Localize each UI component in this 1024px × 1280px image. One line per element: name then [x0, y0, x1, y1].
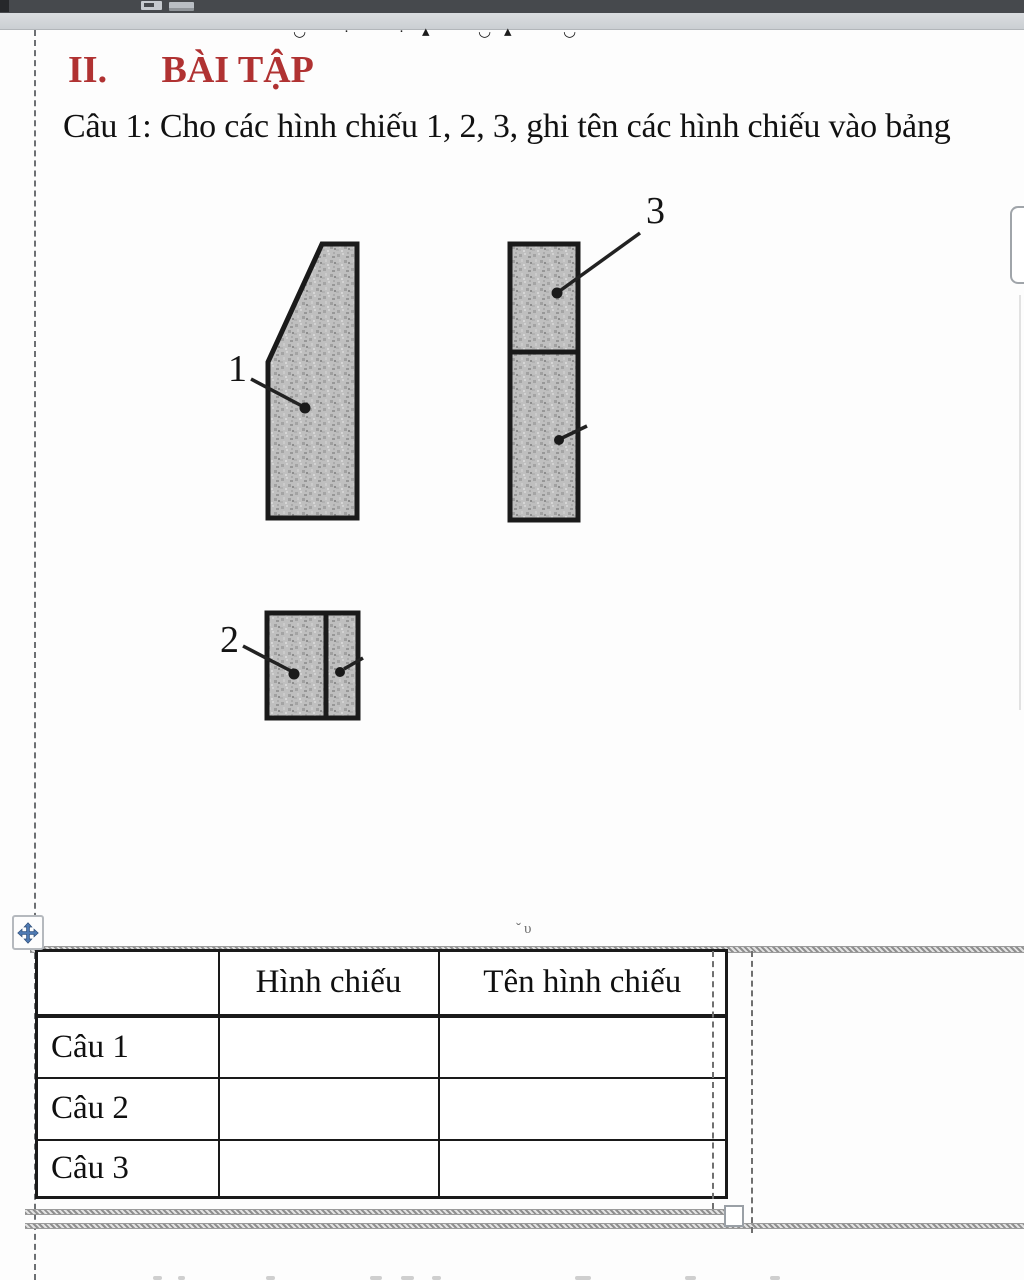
figure-projection-2[interactable]: 2 — [220, 613, 363, 718]
table-gridline-bottom — [25, 1209, 737, 1215]
header-cell-ten-hinh-chieu[interactable]: Tên hình chiếu — [439, 951, 727, 1016]
cell-cau3-hinh-chieu[interactable] — [219, 1140, 439, 1198]
cell-cau2-ten[interactable] — [439, 1078, 727, 1140]
table-row: Câu 1 — [37, 1016, 727, 1078]
header-cell-hinh-chieu[interactable]: Hình chiếu — [219, 951, 439, 1016]
table-resize-handle[interactable] — [724, 1205, 744, 1227]
cell-cau2-hinh-chieu[interactable] — [219, 1078, 439, 1140]
row-label-cau3[interactable]: Câu 3 — [37, 1140, 219, 1198]
figure-projection-1[interactable]: 1 — [228, 244, 357, 518]
cell-cau1-hinh-chieu[interactable] — [219, 1016, 439, 1078]
figure-label-2: 2 — [220, 619, 239, 661]
table-row: Câu 2 — [37, 1078, 727, 1140]
cut-text-mark — [153, 1276, 162, 1280]
cut-text-mark — [432, 1276, 441, 1280]
table-row: Câu 3 — [37, 1140, 727, 1198]
answer-table: Hình chiếu Tên hình chiếu Câu 1 Câu 2 Câ… — [35, 949, 728, 1199]
cut-text-mark — [266, 1276, 275, 1280]
projection-figures: 1 3 2 — [0, 0, 1024, 780]
cell-cau3-ten[interactable] — [439, 1140, 727, 1198]
cell-boundary-dash — [712, 951, 714, 1209]
column-boundary-dash — [751, 951, 753, 1233]
row-label-cau2[interactable]: Câu 2 — [37, 1078, 219, 1140]
cut-text-mark: ˇυ — [516, 921, 534, 938]
leader-dot — [335, 667, 345, 677]
document-window: ◡ · · ▴ ◡ ▴ ◡ II. BÀI TẬP Câu 1: Cho các… — [0, 0, 1024, 1280]
figure-label-1: 1 — [228, 348, 247, 390]
table-header-row: Hình chiếu Tên hình chiếu — [37, 951, 727, 1016]
leader-dot — [289, 669, 300, 680]
cut-text-mark — [685, 1276, 696, 1280]
move-cross-icon — [16, 921, 40, 945]
cut-text-mark — [178, 1276, 185, 1280]
figure-projection-3[interactable]: 3 — [510, 190, 665, 520]
leader-dot — [300, 403, 311, 414]
cut-text-mark — [370, 1276, 382, 1280]
leader-dot — [554, 435, 564, 445]
cell-cau1-ten[interactable] — [439, 1016, 727, 1078]
table-move-handle[interactable] — [12, 915, 44, 950]
cut-text-mark — [770, 1276, 780, 1280]
leader-dot — [552, 288, 563, 299]
cut-text-mark — [401, 1276, 414, 1280]
figure-label-3: 3 — [646, 190, 665, 232]
row-label-cau1[interactable]: Câu 1 — [37, 1016, 219, 1078]
header-cell-empty[interactable] — [37, 951, 219, 1016]
text-boundary-bottom — [25, 1223, 1024, 1229]
cut-text-mark — [575, 1276, 591, 1280]
